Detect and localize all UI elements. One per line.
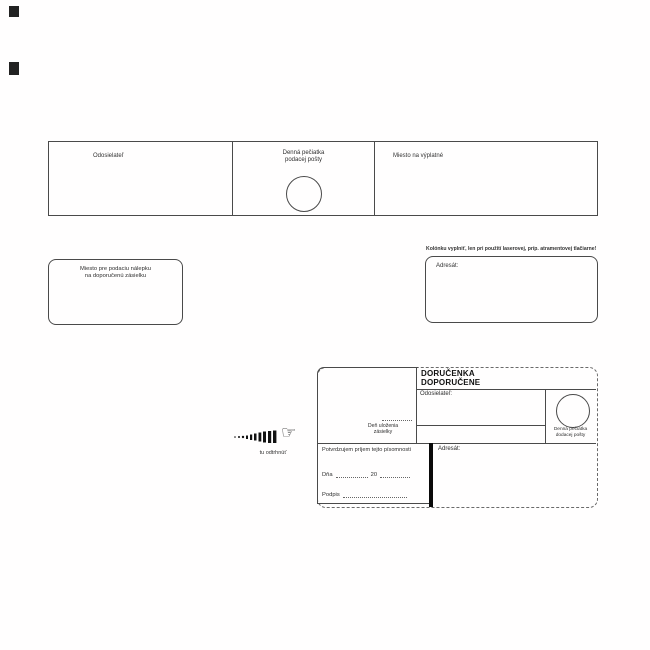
date-fill-line xyxy=(336,471,368,478)
signature-row: Podpis xyxy=(322,491,407,498)
receipt-title: DORUČENKA DOPORUČENE xyxy=(421,370,480,387)
addressee-label: Adresát: xyxy=(436,263,458,270)
signature-label: Podpis xyxy=(322,492,340,498)
posting-stamp-label-line2: podacej pošty xyxy=(285,157,322,163)
postage-label: Miesto na výplatné xyxy=(393,153,443,160)
delivery-stamp-label: Denná pečiatka dodacej pošty xyxy=(545,427,596,438)
receipt-thick-separator xyxy=(429,443,433,507)
posting-stamp-label: Denná pečiatka podacej pošty xyxy=(233,150,374,164)
pointing-hand-icon: ☞ xyxy=(281,425,296,442)
date-row: Dňa 20 xyxy=(322,471,410,478)
storage-day-field: Deň uloženia zásielky xyxy=(352,420,414,435)
storage-day-label-line2: zásielky xyxy=(374,429,392,435)
confirm-text: Potvrdzujem príjem tejto písomnosti xyxy=(322,447,428,453)
year-fill-line xyxy=(380,471,410,478)
receipt-addressee-label: Adresát: xyxy=(438,446,460,452)
tear-here-label: tu odtrhnúť xyxy=(249,450,297,456)
delivery-stamp-label-line1: Denná pečiatka xyxy=(554,427,587,432)
scanned-postal-form: Odosielateľ Denná pečiatka podacej pošty… xyxy=(0,0,650,650)
registration-mark xyxy=(9,6,19,17)
receipt-title-underline xyxy=(416,389,596,390)
receipt-title-line2: DOPORUČENE xyxy=(421,378,480,387)
year-prefix: 20 xyxy=(371,472,377,478)
posting-stamp-field: Denná pečiatka podacej pošty xyxy=(233,142,375,215)
sender-label: Odosielateľ xyxy=(93,153,123,160)
delivery-stamp-label-line2: dodacej pošty xyxy=(556,433,586,438)
storage-day-dotted-line xyxy=(382,420,412,421)
printer-note: Kolónku vyplniť, len pri použití laserov… xyxy=(426,246,591,252)
tear-line-icon xyxy=(233,430,283,443)
posting-stamp-label-line1: Denná pečiatka xyxy=(283,150,325,156)
addressee-box: Adresát: xyxy=(425,256,598,323)
registration-mark xyxy=(9,62,19,75)
postage-field: Miesto na výplatné xyxy=(375,142,597,215)
stamp-circle xyxy=(286,176,322,212)
registered-label-text: Miesto pre podaciu nálepku na doporučenú… xyxy=(49,260,182,280)
delivery-stamp-circle xyxy=(556,394,590,428)
date-label: Dňa xyxy=(322,472,333,478)
registered-label-line1: Miesto pre podaciu nálepku xyxy=(80,266,151,272)
receipt-sender-box-line xyxy=(416,425,545,426)
sender-field: Odosielateľ xyxy=(49,142,233,215)
receipt-sender-label: Odosielateľ: xyxy=(420,391,452,397)
registered-label-box: Miesto pre podaciu nálepku na doporučenú… xyxy=(48,259,183,325)
address-side-strip: Odosielateľ Denná pečiatka podacej pošty… xyxy=(48,141,598,216)
registered-label-line2: na doporučenú zásielku xyxy=(85,273,146,279)
receipt-divider-vertical xyxy=(416,368,417,443)
signature-fill-line xyxy=(343,491,407,498)
